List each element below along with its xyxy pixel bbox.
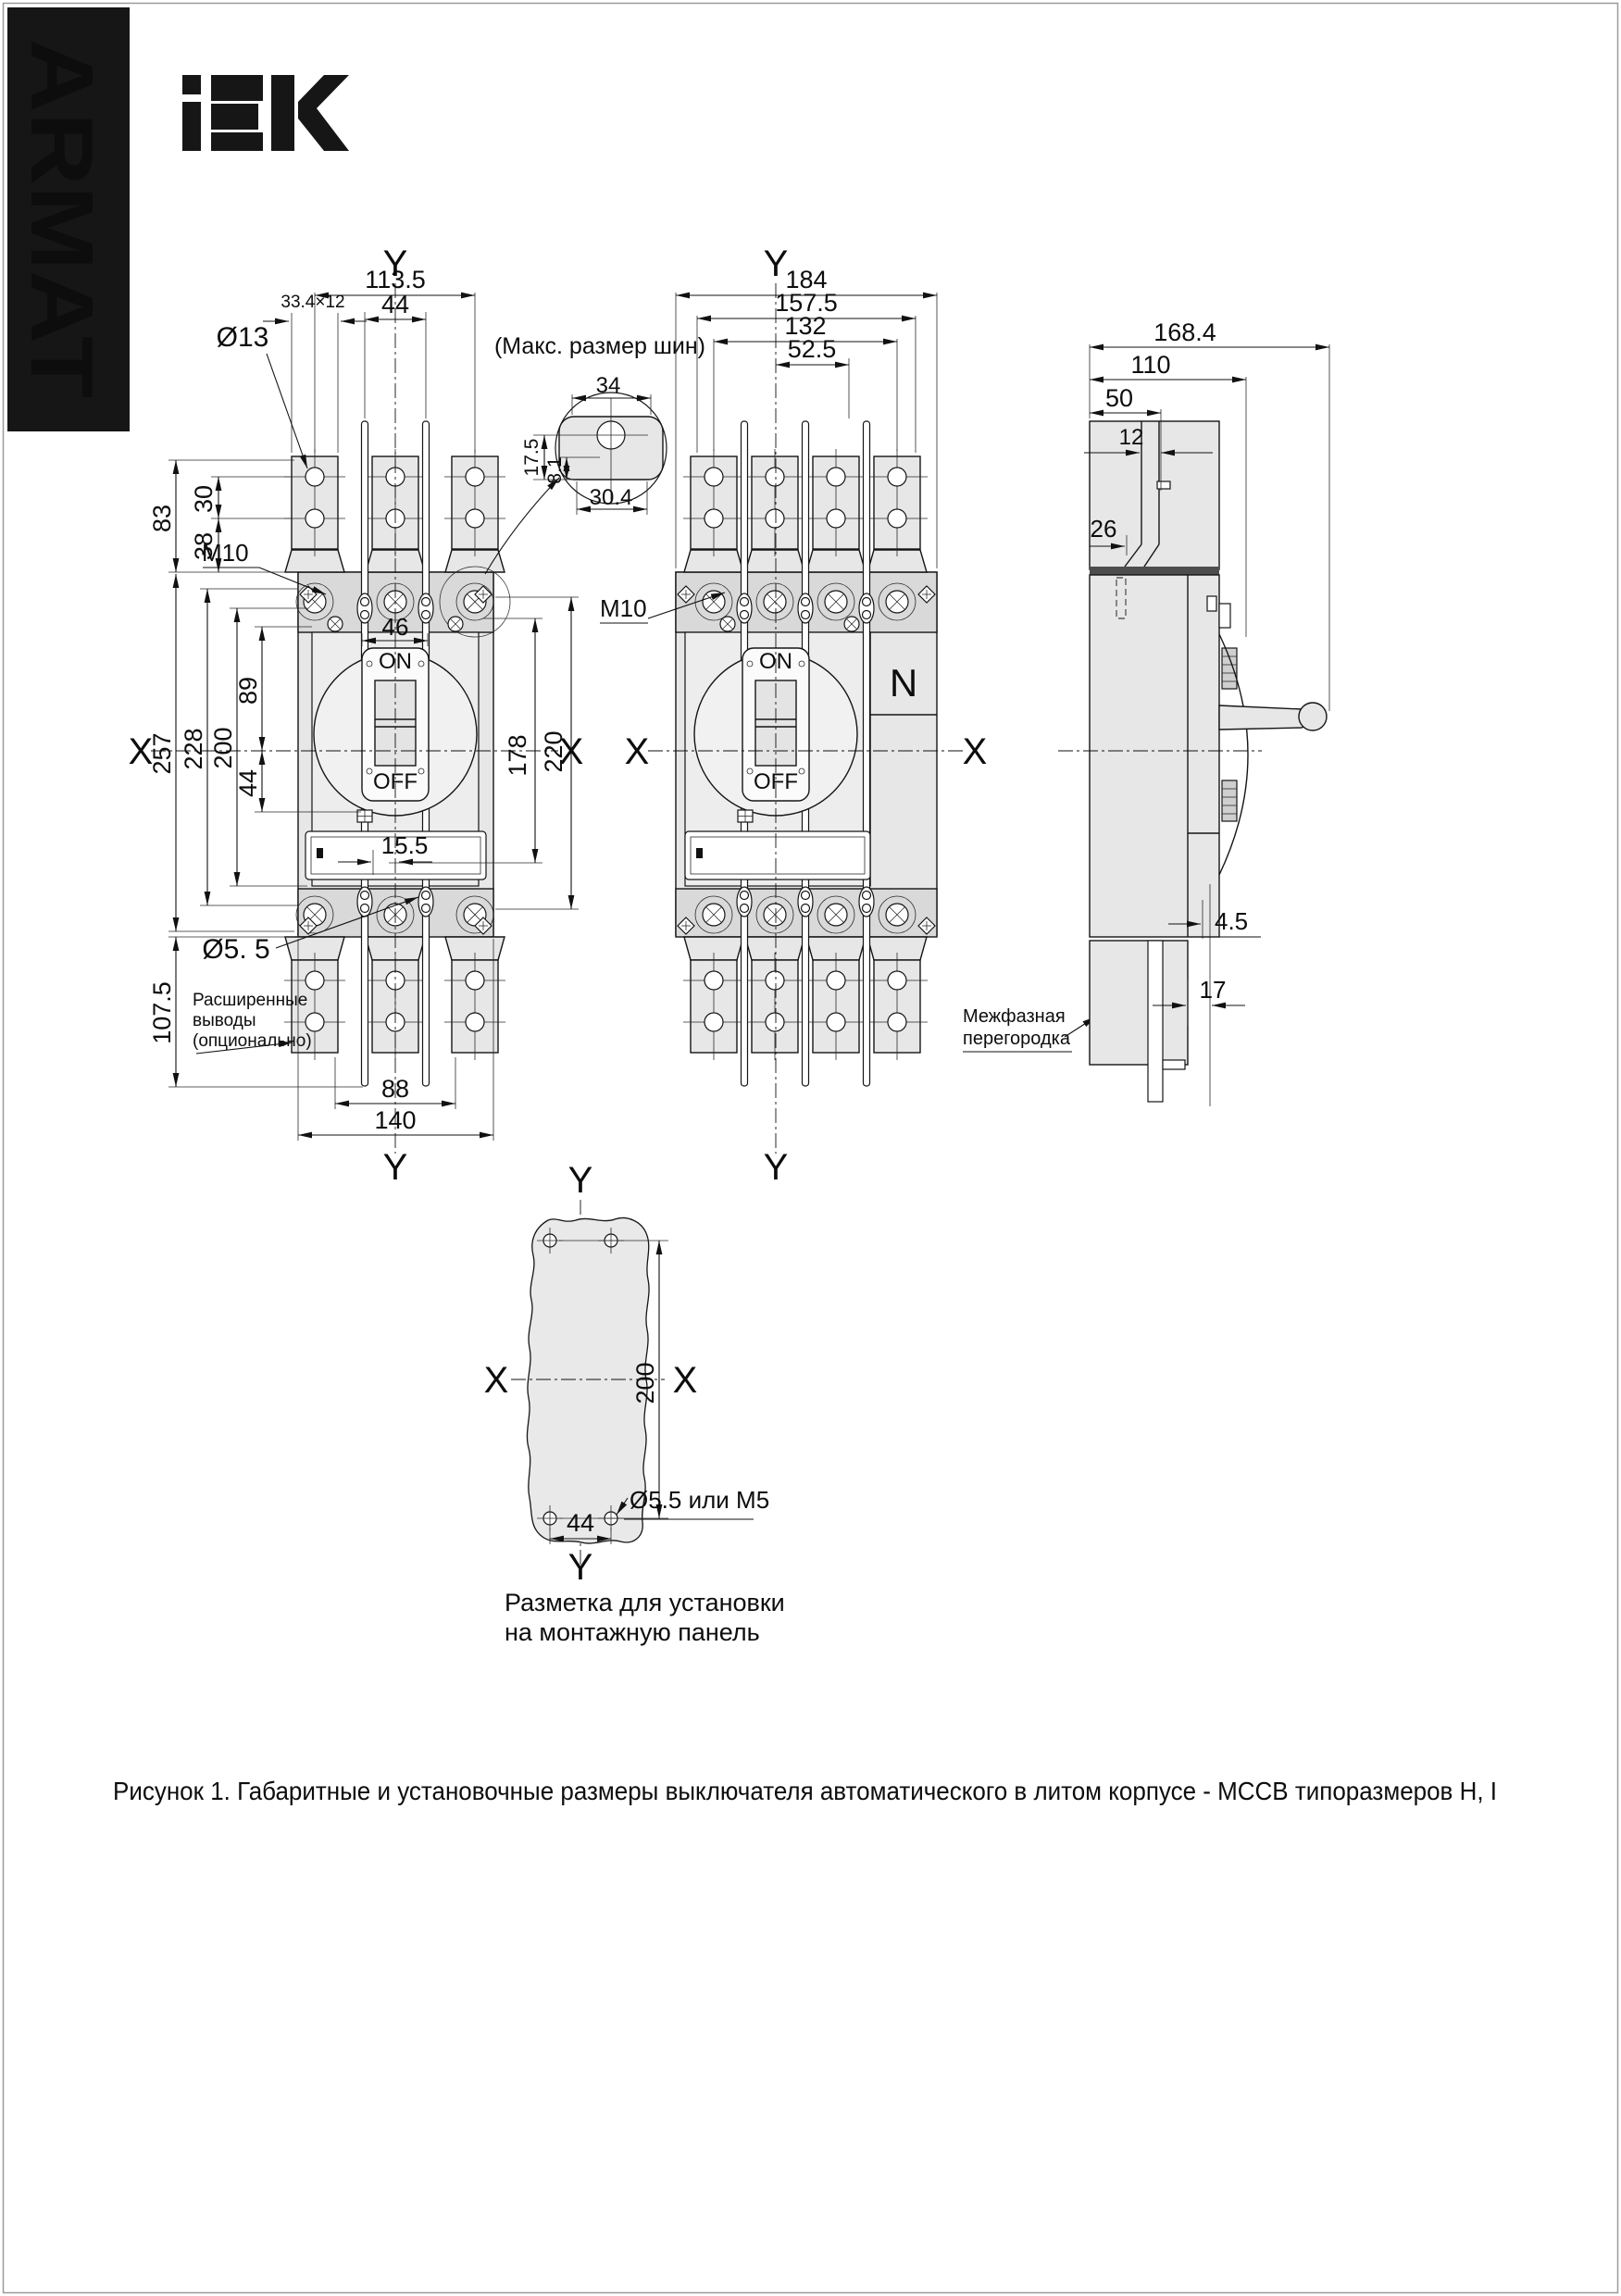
cover-separator: [1090, 567, 1219, 575]
dim-handle-width: 46: [382, 613, 409, 641]
armat-banner: ARMAT: [7, 7, 130, 431]
axis-x-right: X: [963, 731, 988, 772]
label-thread-m10: M10: [600, 594, 647, 622]
template-caption-2: на монтажную панель: [505, 1618, 760, 1646]
dim-gap45: 4.5: [1215, 907, 1248, 935]
axis-y-top: Y: [568, 1160, 593, 1201]
note-extended-1: Расширенные: [193, 991, 307, 1010]
dim-h200: 200: [209, 727, 237, 768]
neutral-pole-label: N: [890, 661, 917, 705]
axis-x-left: X: [484, 1360, 509, 1401]
dim-h30: 30: [190, 485, 218, 513]
detail-dim-304: 30.4: [590, 485, 633, 510]
detail-title: (Макс. размер шин): [494, 333, 705, 359]
dim-h178: 178: [504, 734, 531, 776]
brand-vertical-text: ARMAT: [12, 39, 111, 398]
toggle-lever: [1219, 705, 1309, 730]
case-side: [1090, 575, 1219, 937]
dim-h44: 44: [234, 769, 262, 797]
detail-dim-34: 34: [596, 373, 621, 398]
axis-y-bottom: Y: [383, 1147, 408, 1188]
detail-dim-175: 17.5: [521, 439, 542, 477]
toggle-lever-tip: [1299, 703, 1327, 730]
dim-w12: 12: [1119, 425, 1144, 450]
dim-h228: 228: [180, 728, 207, 769]
dim-w110: 110: [1130, 351, 1170, 379]
bottom-terminal-block: [1090, 941, 1188, 1065]
dim-w168: 168.4: [1153, 318, 1216, 346]
note-barrier-1: Межфазная: [963, 1006, 1066, 1027]
dim-w140: 140: [374, 1106, 416, 1134]
label-hole-spec: Ø5.5 или М5: [630, 1486, 769, 1514]
interphase-barrier-plate: [1148, 941, 1163, 1102]
axis-y-bottom: Y: [764, 1147, 789, 1188]
dim-w50: 50: [1105, 384, 1133, 412]
dim-w44: 44: [567, 1509, 594, 1537]
dim-w26: 26: [1091, 515, 1117, 543]
datasheet-page: ARMAT ON OFF: [0, 0, 1621, 2296]
note-extended-2: выводы: [193, 1011, 256, 1030]
axis-y-bottom: Y: [568, 1547, 593, 1588]
dim-overall-width: 113.5: [365, 266, 426, 293]
axis-x-left: X: [625, 731, 650, 772]
label-thread-m10: M10: [202, 539, 249, 567]
top-terminal-cover: [1090, 421, 1219, 569]
axis-x-right: X: [673, 1360, 698, 1401]
dim-w88: 88: [381, 1075, 409, 1103]
nameplate-window: [685, 831, 870, 880]
dim-plate-offset: 15.5: [381, 831, 429, 859]
dim-rod-pitch: 44: [381, 291, 409, 318]
figure-caption: Рисунок 1. Габаритные и установочные раз…: [113, 1777, 1497, 1805]
dim-h220: 220: [540, 730, 567, 772]
detail-dim-81: 8.1: [544, 456, 566, 483]
dim-w52: 52.5: [788, 335, 837, 363]
dim-off17: 17: [1200, 976, 1227, 1004]
axis-y-top: Y: [764, 243, 789, 284]
dim-h200: 200: [631, 1362, 659, 1404]
dim-h83: 83: [148, 505, 176, 532]
note-extended-3: (опционально): [193, 1031, 312, 1051]
dim-h257: 257: [148, 732, 176, 774]
technical-drawing-canvas: ARMAT ON OFF: [0, 0, 1621, 2296]
template-caption-1: Разметка для установки: [505, 1589, 785, 1616]
dim-lug-hole: Ø13: [217, 322, 269, 353]
dim-slot: 33.4×12: [281, 293, 344, 312]
dim-h107: 107.5: [148, 981, 176, 1044]
dim-h89: 89: [234, 677, 262, 705]
note-barrier-2: перегородка: [963, 1029, 1071, 1049]
dim-base-hole: Ø5. 5: [202, 934, 269, 965]
